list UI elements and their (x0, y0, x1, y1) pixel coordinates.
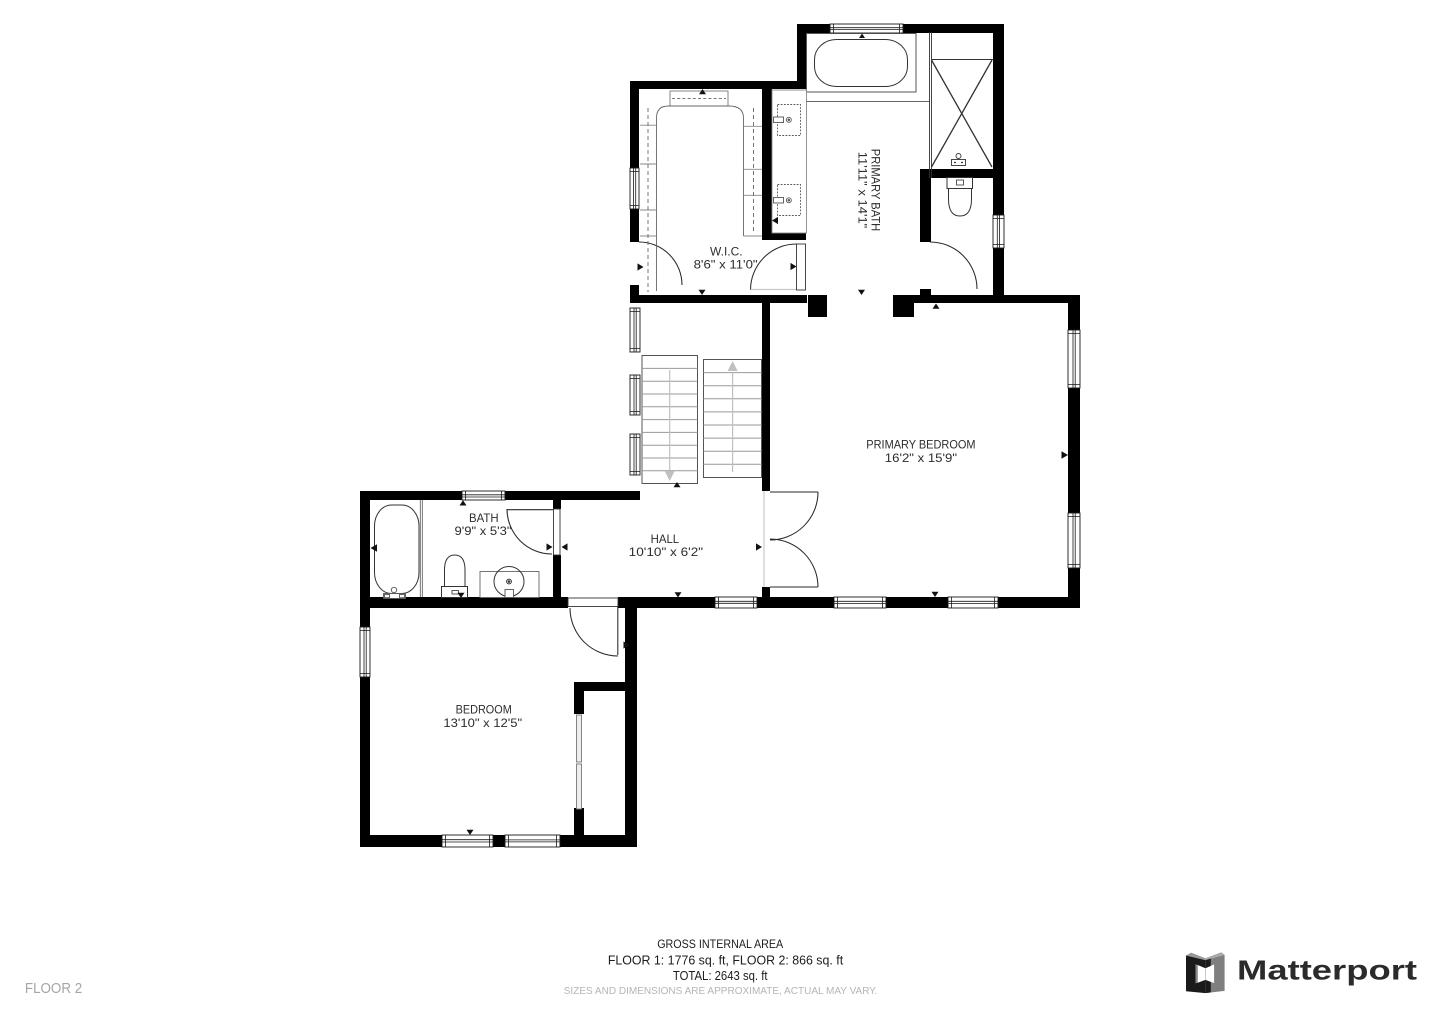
svg-text:FLOOR 2: FLOOR 2 (25, 981, 82, 997)
svg-text:8'6" x 11'0": 8'6" x 11'0" (694, 257, 758, 271)
svg-text:Matterport: Matterport (1237, 955, 1417, 986)
svg-text:GROSS INTERNAL AREA: GROSS INTERNAL AREA (657, 937, 783, 951)
svg-text:10'10" x 6'2": 10'10" x 6'2" (629, 545, 703, 559)
svg-text:SIZES AND DIMENSIONS ARE APPRO: SIZES AND DIMENSIONS ARE APPROXIMATE, AC… (564, 986, 878, 997)
svg-text:16'2" x 15'9": 16'2" x 15'9" (885, 451, 957, 465)
svg-text:TOTAL: 2643 sq. ft: TOTAL: 2643 sq. ft (673, 968, 768, 983)
svg-text:PRIMARY BATH11'11" x 14'1": PRIMARY BATH11'11" x 14'1" (856, 149, 883, 231)
svg-text:13'10" x 12'5": 13'10" x 12'5" (443, 716, 522, 730)
svg-text:BEDROOM: BEDROOM (456, 703, 512, 717)
svg-text:BATH: BATH (469, 511, 499, 525)
svg-text:HALL: HALL (651, 532, 680, 546)
svg-text:PRIMARY BEDROOM: PRIMARY BEDROOM (866, 438, 975, 452)
svg-text:W.I.C.: W.I.C. (710, 244, 743, 258)
svg-text:FLOOR 1: 1776 sq. ft, FLOOR 2:: FLOOR 1: 1776 sq. ft, FLOOR 2: 866 sq. f… (608, 952, 844, 967)
svg-text:9'9" x 5'3": 9'9" x 5'3" (455, 524, 512, 538)
